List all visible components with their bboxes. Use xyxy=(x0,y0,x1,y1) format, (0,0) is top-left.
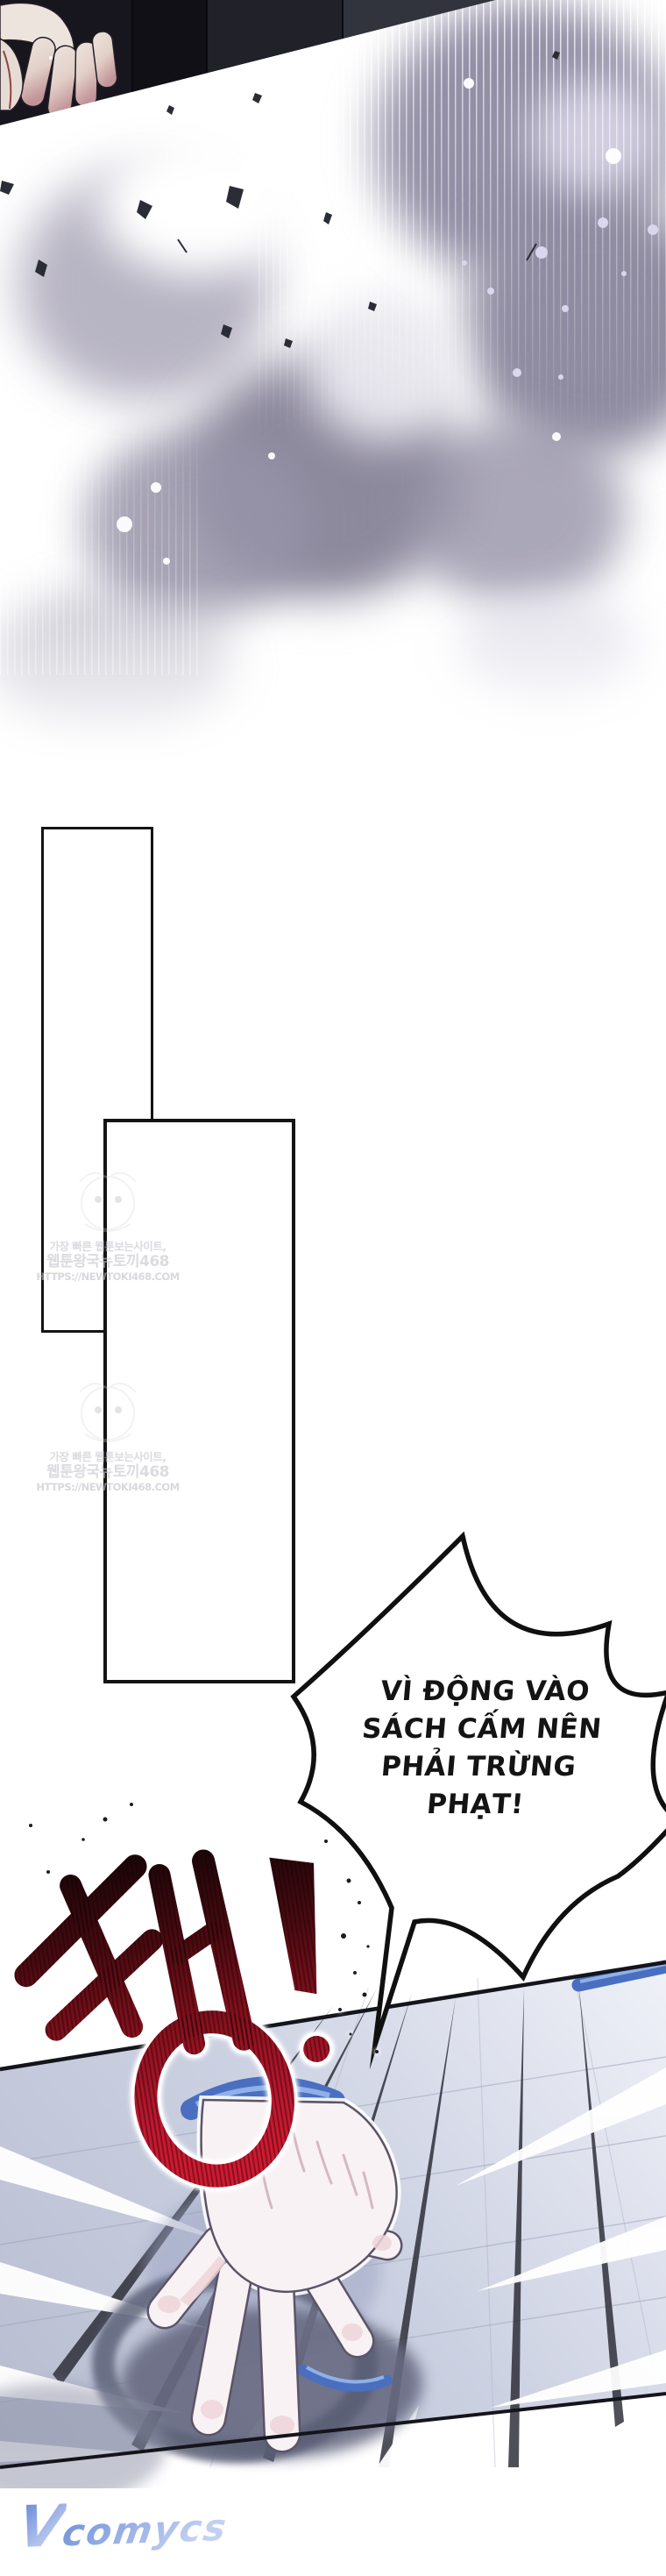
speech-bubble-text: VÌ ĐỘNG VÀO SÁCH CẤM NÊN PHẢI TRỪNG PHẠT… xyxy=(351,1673,609,1824)
watermark-url: HTTPS://NEWTOKI468.COM xyxy=(33,1481,182,1494)
smoke-background xyxy=(0,0,666,859)
watermark-block-2: 가장 빠른 웹툰보는사이트, 웹툰왕국뉴토끼468 HTTPS://NEWTOK… xyxy=(33,1364,182,1494)
watermark-tagline: 가장 빠른 웹툰보는사이트, xyxy=(33,1240,182,1253)
watermark-sitename: 웹툰왕국뉴토끼468 xyxy=(33,1463,182,1481)
sfx-bang-text xyxy=(0,1789,386,2210)
debris-splatter-overlay xyxy=(0,0,666,842)
bubble-line: SÁCH CẤM NÊN xyxy=(358,1711,606,1748)
bubble-line: PHẠT! xyxy=(351,1786,599,1824)
watermark-ghost-icon xyxy=(55,1364,160,1448)
watermark-sitename: 웹툰왕국뉴토끼468 xyxy=(33,1253,182,1270)
watermark-url: HTTPS://NEWTOKI468.COM xyxy=(33,1270,182,1284)
watermark-tagline: 가장 빠른 웹툰보는사이트, xyxy=(33,1450,182,1463)
bubble-line: PHẢI TRỪNG xyxy=(354,1748,603,1786)
watermark-ghost-icon xyxy=(55,1154,160,1238)
bubble-line: VÌ ĐỘNG VÀO xyxy=(361,1673,610,1711)
watermark-block-1: 가장 빠른 웹툰보는사이트, 웹툰왕국뉴토끼468 HTTPS://NEWTOK… xyxy=(33,1154,182,1284)
logo-rest: comycs xyxy=(60,2506,230,2554)
publisher-logo: Vcomycs xyxy=(14,2487,233,2561)
webtoon-page: 가장 빠른 웹툰보는사이트, 웹툰왕국뉴토끼468 HTTPS://NEWTOK… xyxy=(0,0,666,2576)
